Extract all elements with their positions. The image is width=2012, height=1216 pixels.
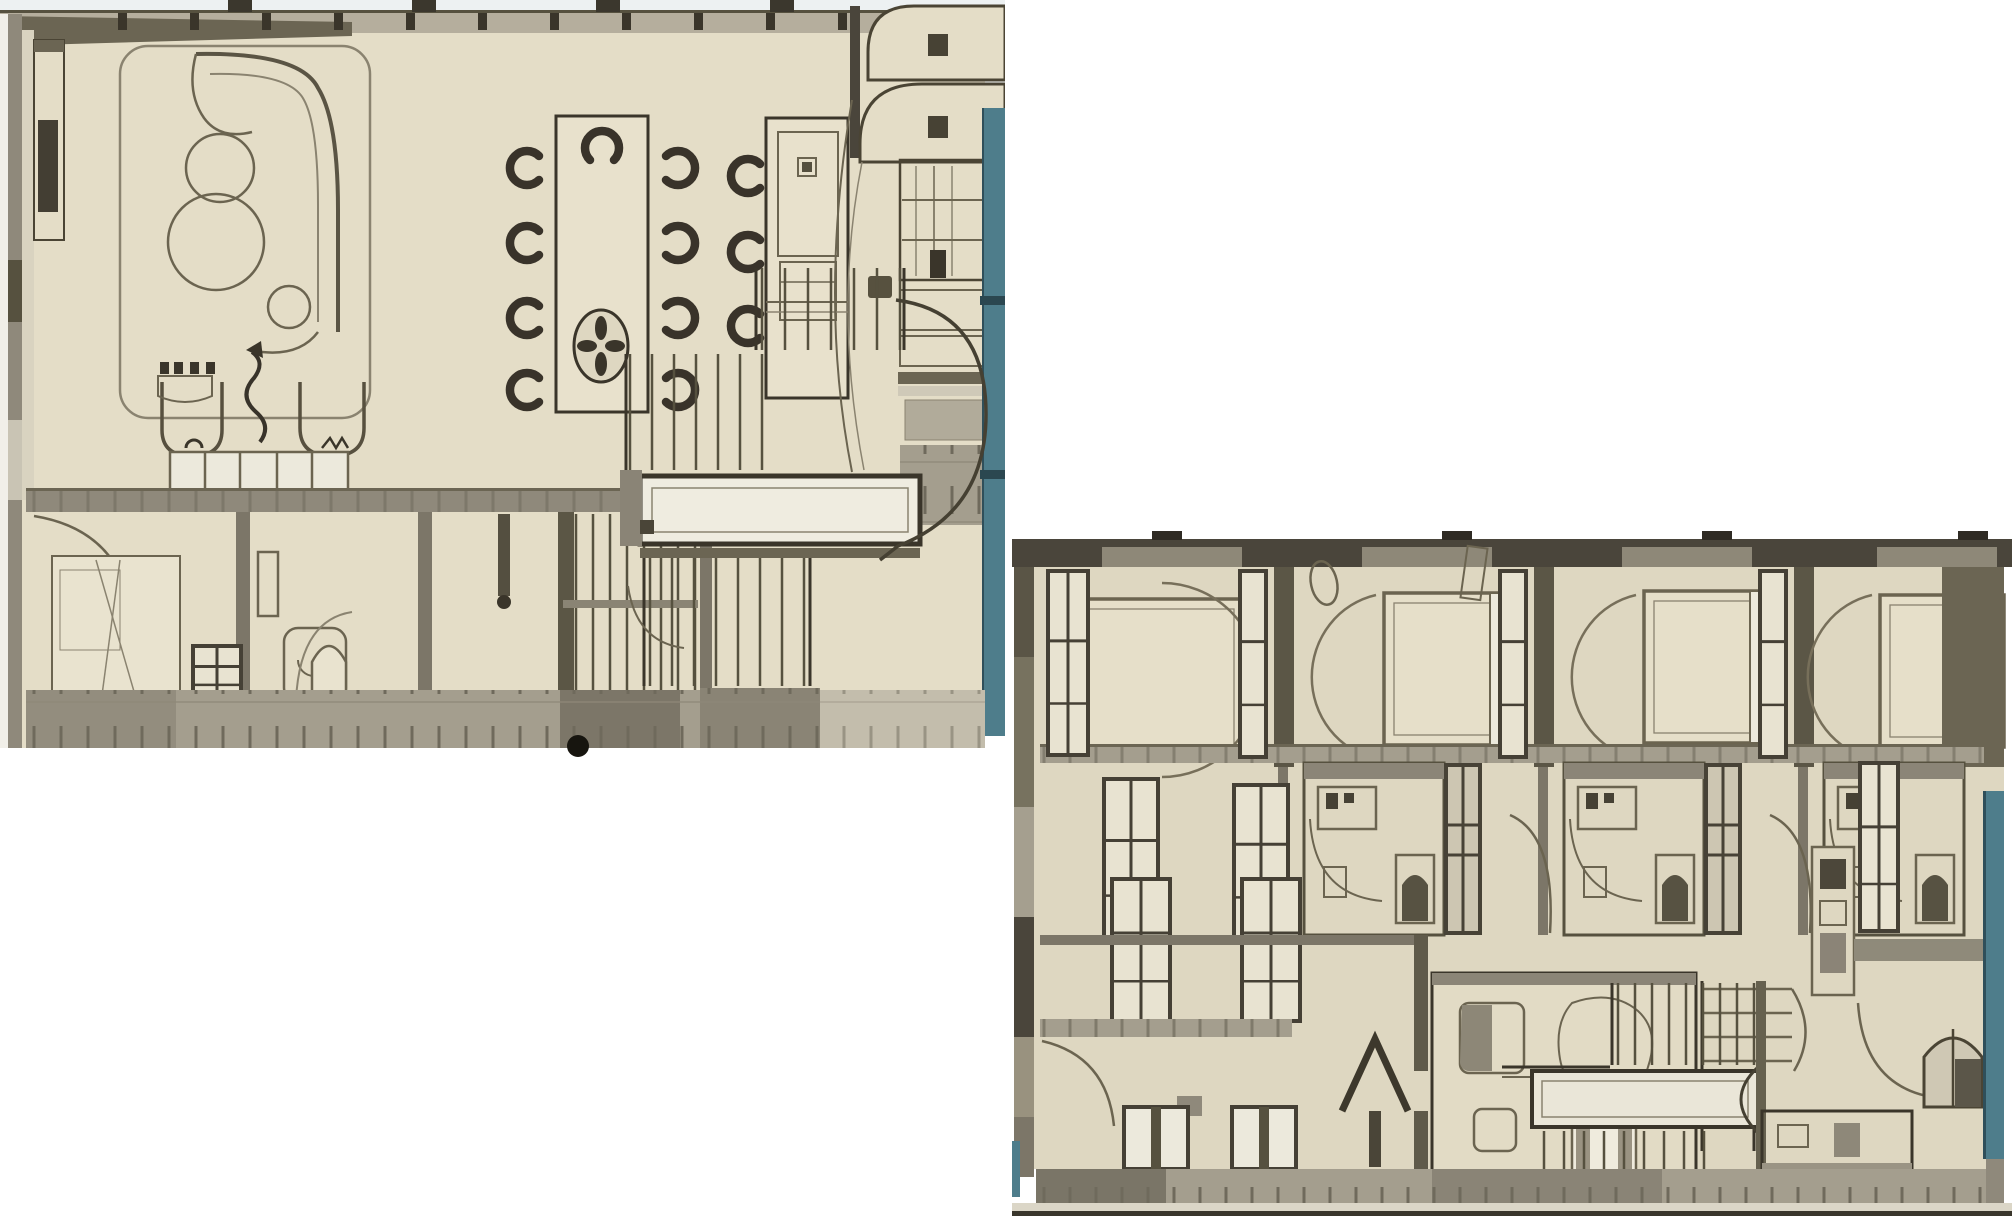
table-centerpiece <box>574 310 628 382</box>
pod-top-band <box>1304 763 1444 779</box>
mullion-tick <box>478 13 487 30</box>
curtain-wall-glazing <box>1986 791 2004 1159</box>
window-frame <box>1760 571 1786 757</box>
mullion-tick <box>550 13 559 30</box>
column-tab <box>770 0 794 12</box>
column-tab <box>1152 531 1182 540</box>
column-tab <box>596 0 620 12</box>
window-frame <box>1240 571 1266 757</box>
roof-overlap <box>1942 567 2004 767</box>
window <box>1048 571 1088 755</box>
column-tab <box>1702 531 1732 540</box>
glazed-door <box>1706 765 1740 933</box>
tap <box>1326 793 1338 809</box>
mullion-tick <box>406 13 415 30</box>
facade-column-tabs <box>1152 531 1988 540</box>
stair-landing <box>1532 1071 1758 1127</box>
column-tab <box>1442 531 1472 540</box>
arched-opening <box>1402 875 1428 921</box>
mullion-tick <box>262 13 271 30</box>
window <box>1124 1107 1188 1169</box>
arched-opening <box>1662 875 1688 921</box>
mullion-tick <box>190 13 199 30</box>
column-dot <box>567 735 589 757</box>
arched-opening <box>1922 875 1948 921</box>
left-floor-plan <box>0 0 1005 762</box>
window <box>1240 571 1266 757</box>
tap <box>1604 793 1614 803</box>
top-facade-wall <box>1012 531 2012 567</box>
bottom-facade-band <box>26 688 985 757</box>
mullion-tick <box>694 13 703 30</box>
window <box>1112 879 1170 1021</box>
center-post <box>1259 1107 1269 1169</box>
glazed-door <box>1446 765 1480 933</box>
column-tab <box>412 0 436 12</box>
window <box>1242 879 1300 1021</box>
mullion-tick <box>622 13 631 30</box>
left-margin-wall <box>1012 567 1034 1197</box>
right-floor-plan <box>1012 511 2012 1216</box>
entry-door-opening <box>38 120 58 212</box>
mullion-tick <box>334 13 343 30</box>
mullion-tick <box>118 13 127 30</box>
window <box>1860 763 1898 931</box>
small-stool <box>868 276 892 298</box>
pod-top-band <box>1564 763 1704 779</box>
tap <box>1344 793 1354 803</box>
bottom-facade-band <box>1012 1169 2012 1216</box>
mullion-tick <box>838 13 847 30</box>
tap <box>1846 793 1858 809</box>
column-tab <box>1958 531 1988 540</box>
mullion-tick <box>766 13 775 30</box>
center-post <box>1151 1107 1161 1169</box>
entry-lintel <box>34 40 64 52</box>
tap <box>1586 793 1598 809</box>
window <box>1232 1107 1296 1169</box>
window <box>1760 571 1786 757</box>
window <box>1500 571 1526 757</box>
column-tab <box>228 0 252 12</box>
window-frame <box>1500 571 1526 757</box>
two-floor-plans-composition <box>0 0 2012 1216</box>
stair-landing <box>640 476 920 544</box>
